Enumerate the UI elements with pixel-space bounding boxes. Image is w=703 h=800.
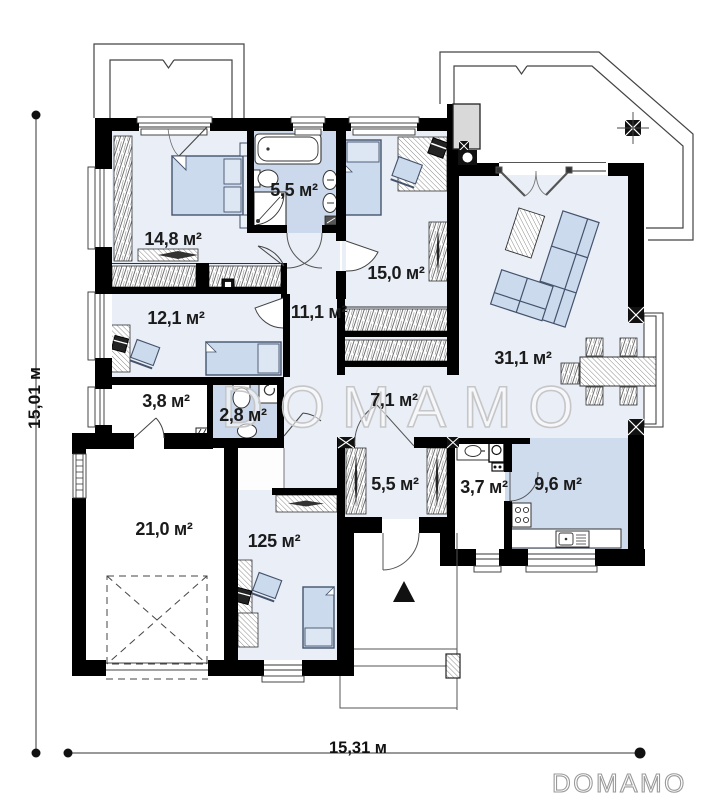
svg-text:3,8 м²: 3,8 м²: [142, 391, 190, 411]
svg-text:5,5 м²: 5,5 м²: [270, 180, 318, 200]
svg-text:DOMAMO: DOMAMO: [552, 768, 687, 798]
svg-text:9,6 м²: 9,6 м²: [534, 474, 582, 494]
svg-text:7,1 м²: 7,1 м²: [370, 390, 418, 410]
svg-text:11,1 м²: 11,1 м²: [291, 302, 348, 322]
svg-text:2,8 м²: 2,8 м²: [219, 405, 267, 425]
svg-text:14,8 м²: 14,8 м²: [144, 229, 202, 249]
svg-text:15,31 м: 15,31 м: [329, 738, 387, 757]
svg-text:125 м²: 125 м²: [248, 531, 301, 551]
svg-text:12,1 м²: 12,1 м²: [147, 308, 205, 328]
svg-text:3,7 м²: 3,7 м²: [460, 477, 508, 497]
svg-text:5,5 м²: 5,5 м²: [371, 474, 419, 494]
svg-text:15,0 м²: 15,0 м²: [367, 263, 425, 283]
svg-text:31,1 м²: 31,1 м²: [494, 348, 552, 368]
svg-text:15,01 м: 15,01 м: [25, 367, 44, 429]
svg-text:21,0 м²: 21,0 м²: [135, 519, 193, 539]
